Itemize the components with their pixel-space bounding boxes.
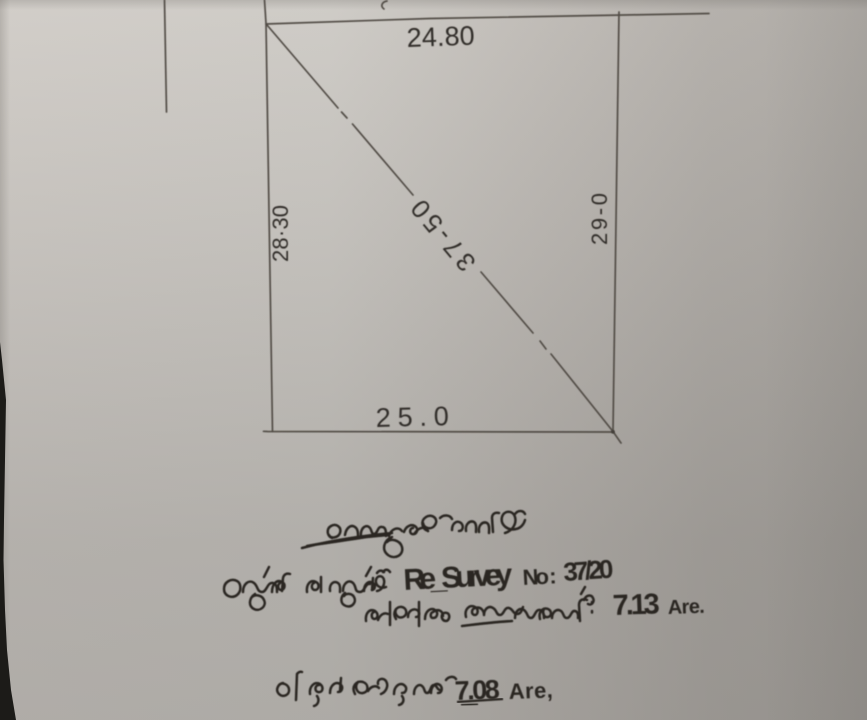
svg-text:No :: No : (522, 563, 557, 590)
svg-text:28·30: 28·30 (268, 205, 293, 262)
svg-text:24.80: 24.80 (406, 21, 475, 53)
svg-text:37/20: 37/20 (562, 554, 614, 587)
svg-text:25.0: 25.0 (375, 401, 449, 433)
svg-text:7.13: 7.13 (612, 588, 660, 622)
svg-text:Re_Survey: Re_Survey (403, 558, 514, 597)
svg-text:Are.: Are. (667, 596, 705, 619)
svg-text:29-0: 29-0 (587, 193, 612, 245)
svg-text:37-50: 37-50 (405, 194, 482, 278)
svg-text:Are,: Are, (508, 677, 553, 704)
